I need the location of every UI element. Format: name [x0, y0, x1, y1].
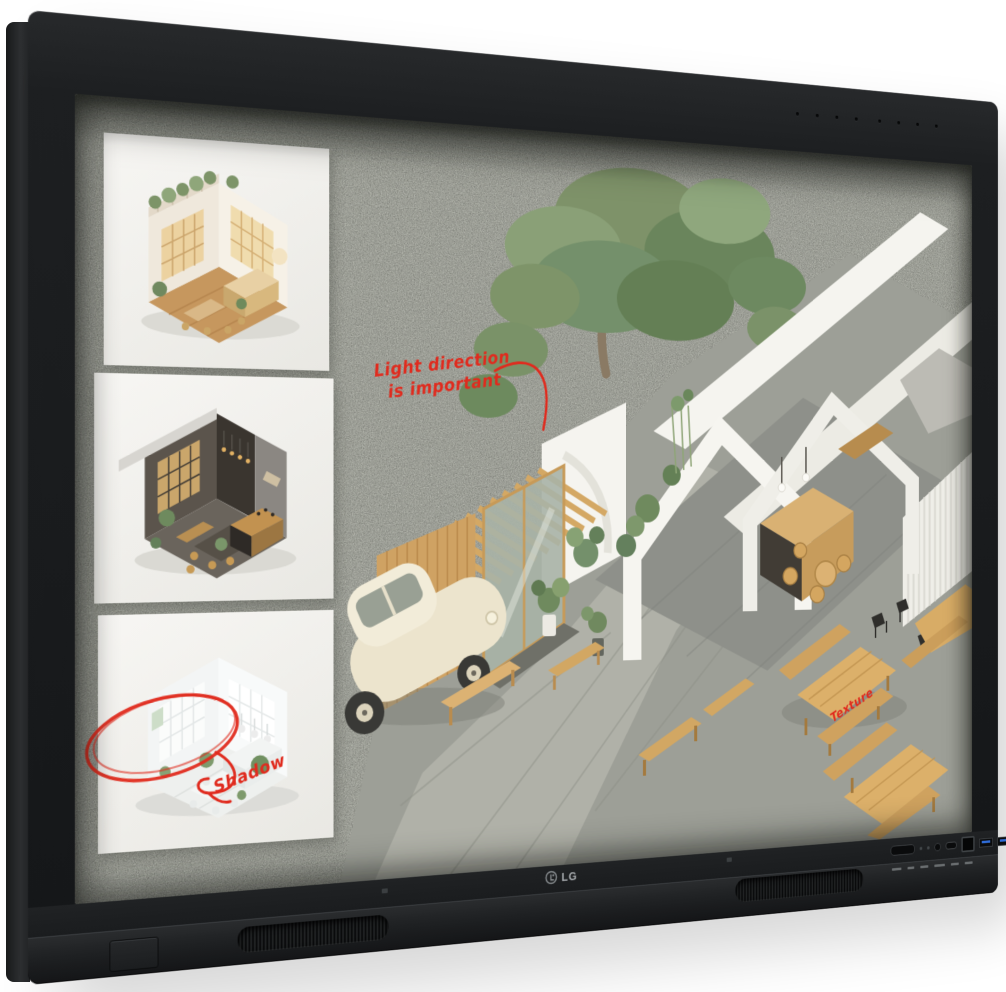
- front-button-module: [109, 936, 158, 972]
- monitor-frame: CAFE: [28, 10, 998, 985]
- mic-hole-icon: [855, 117, 858, 121]
- hdmi-port-icon: [891, 844, 915, 856]
- ir-sensor-icon: [920, 846, 923, 850]
- touch-usb-b-port-icon: [961, 836, 974, 853]
- product-photo-lg-interactive-display: CAFE: [0, 0, 1006, 992]
- usb-a-port-icon: [979, 838, 993, 848]
- chin-marking-icon: [382, 888, 388, 893]
- warm-cafe-interior-render: [104, 132, 330, 370]
- usb-a-port-icon: [997, 836, 1006, 846]
- perspective-scene: CAFE: [0, 0, 1006, 992]
- usb-c-port-icon: [946, 841, 957, 849]
- mic-hole-icon: [935, 124, 938, 128]
- thumbnail-white-room-render: [98, 610, 334, 854]
- microphone-holes: [796, 112, 938, 128]
- mic-hole-icon: [796, 112, 799, 116]
- audio-jack-icon: [934, 842, 941, 851]
- mic-group: [878, 119, 937, 128]
- lg-symbol-icon: [545, 870, 558, 885]
- lg-logo: LG: [545, 868, 577, 885]
- mic-hole-icon: [816, 114, 819, 118]
- display-screen-moodboard: CAFE: [75, 94, 972, 904]
- dark-lounge-interior-render: [94, 373, 333, 604]
- lg-logo-text: LG: [562, 869, 578, 884]
- mic-hole-icon: [897, 121, 900, 125]
- white-room-interior-render: [98, 610, 334, 854]
- mic-group: [796, 112, 858, 121]
- thumbnail-dark-lounge-render: [94, 373, 333, 604]
- mic-hole-icon: [835, 116, 838, 120]
- thumbnail-warm-cafe-render: [104, 132, 330, 370]
- led-indicator-icon: [927, 846, 930, 850]
- mic-hole-icon: [916, 123, 919, 127]
- mic-hole-icon: [878, 119, 881, 123]
- chin-marking-icon: [727, 857, 732, 862]
